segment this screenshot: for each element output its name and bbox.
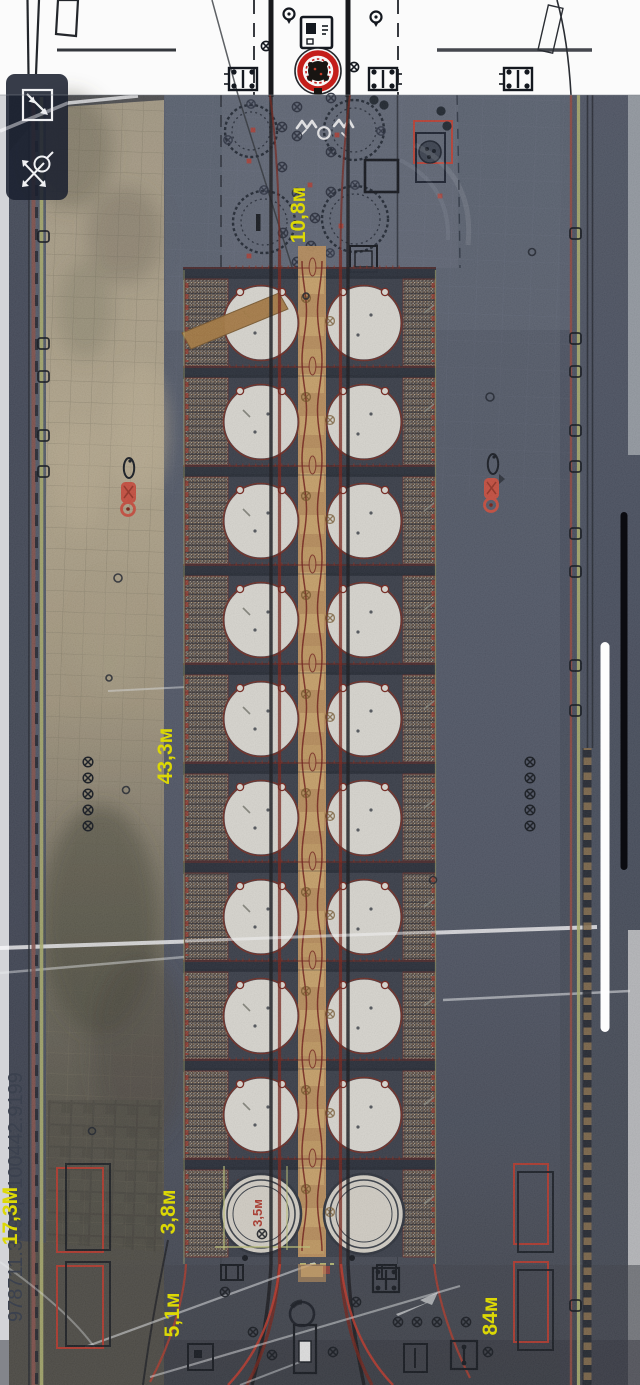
- svg-text:84м: 84м: [479, 1297, 502, 1336]
- svg-text:17,3М: 17,3М: [0, 1187, 22, 1245]
- svg-text:43,3м: 43,3м: [154, 728, 177, 784]
- svg-text:10,8м: 10,8м: [287, 187, 310, 243]
- svg-text:5,1м: 5,1м: [161, 1293, 184, 1338]
- svg-text:3,8м: 3,8м: [157, 1190, 180, 1235]
